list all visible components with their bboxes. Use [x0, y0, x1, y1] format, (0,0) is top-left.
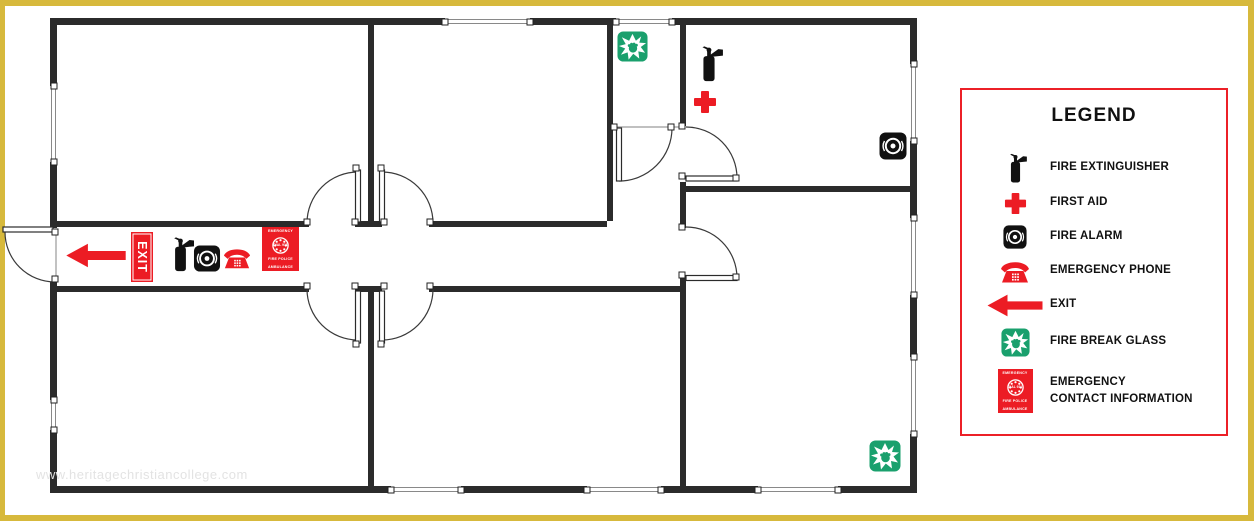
- room-first-aid-icon: [694, 91, 716, 113]
- rotary-dial-icon: DIAL 911: [272, 237, 289, 254]
- contact-sign-line4: AMBULANCE: [268, 265, 293, 269]
- legend-label: FIRE EXTINGUISHER: [1050, 159, 1169, 176]
- corridor-emergency-phone-icon: [224, 249, 250, 268]
- door-topright-room: [686, 127, 737, 181]
- legend-label: FIRE ALARM: [1050, 228, 1122, 245]
- legend-row-emergency-phone: EMERGENCY PHONE: [980, 253, 1171, 289]
- legend-row-fire-alarm: FIRE ALARM: [980, 219, 1122, 255]
- rotary-dial-icon: DIAL 911: [1007, 379, 1024, 396]
- corridor-fire-alarm-icon: [194, 245, 220, 271]
- door-exit-west: [3, 227, 55, 282]
- contact-sign-dial-label: DIAL 911: [272, 243, 289, 247]
- door-closet: [617, 128, 673, 181]
- room-fire-extinguisher-icon: [703, 46, 723, 81]
- wall-fire-alarm-icon: [880, 133, 907, 160]
- legend-row-fire-break-glass: FIRE BREAK GLASS: [980, 324, 1166, 360]
- corridor-exit-arrow-icon: [66, 244, 125, 267]
- room-fire-break-glass-icon: [870, 441, 901, 472]
- legend-row-first-aid: FIRST AID: [980, 185, 1108, 221]
- emergency-contact-icon: EMERGENCY DIAL 911 FIRE POLICE AMBULANCE: [980, 369, 1050, 413]
- legend-label: EXIT: [1050, 296, 1076, 313]
- legend-label-two-line: EMERGENCY CONTACT INFORMATION: [1050, 374, 1193, 409]
- legend-label: EMERGENCY PHONE: [1050, 262, 1171, 279]
- legend-row-emergency-contact: EMERGENCY DIAL 911 FIRE POLICE AMBULANCE…: [980, 368, 1193, 414]
- legend-title: LEGEND: [962, 105, 1226, 127]
- corridor-emergency-contact-sign: EMERGENCY DIAL 911 FIRE POLICE AMBULANCE: [262, 227, 299, 271]
- exit-arrow-icon: [980, 293, 1050, 318]
- fire-alarm-icon: [980, 225, 1050, 249]
- fire-break-glass-icon: [980, 328, 1050, 357]
- first-aid-icon: [980, 192, 1050, 215]
- door-bottomright-room: [686, 227, 737, 281]
- legend-label: FIRST AID: [1050, 194, 1108, 211]
- contact-sign-line3: FIRE POLICE: [268, 257, 293, 261]
- legend-box: LEGEND FIRE EXTINGUISHER FIRST AID FIRE …: [960, 88, 1228, 436]
- legend-row-exit: EXIT: [980, 287, 1076, 323]
- screenshot-canvas: { "watermark": "www.heritagechristiancol…: [0, 0, 1254, 521]
- exit-sign-label: EXIT: [135, 241, 149, 273]
- corridor-fire-extinguisher-icon: [174, 237, 194, 271]
- door-topmid-room: [380, 170, 434, 223]
- contact-sign-line1: EMERGENCY: [268, 229, 293, 233]
- watermark: www.heritagechristiancollege.com: [36, 467, 248, 482]
- plan-symbols: [66, 31, 906, 471]
- door-bottommid-room: [380, 289, 434, 343]
- corridor-exit-sign: EXIT: [131, 232, 153, 282]
- door-topleft-room: [307, 170, 361, 223]
- fire-extinguisher-icon: [980, 152, 1050, 184]
- emergency-phone-icon: [980, 259, 1050, 283]
- closet-fire-break-glass-icon: [617, 31, 647, 61]
- legend-label: FIRE BREAK GLASS: [1050, 333, 1166, 350]
- door-bottomleft-room: [307, 289, 361, 343]
- legend-row-fire-extinguisher: FIRE EXTINGUISHER: [980, 150, 1169, 186]
